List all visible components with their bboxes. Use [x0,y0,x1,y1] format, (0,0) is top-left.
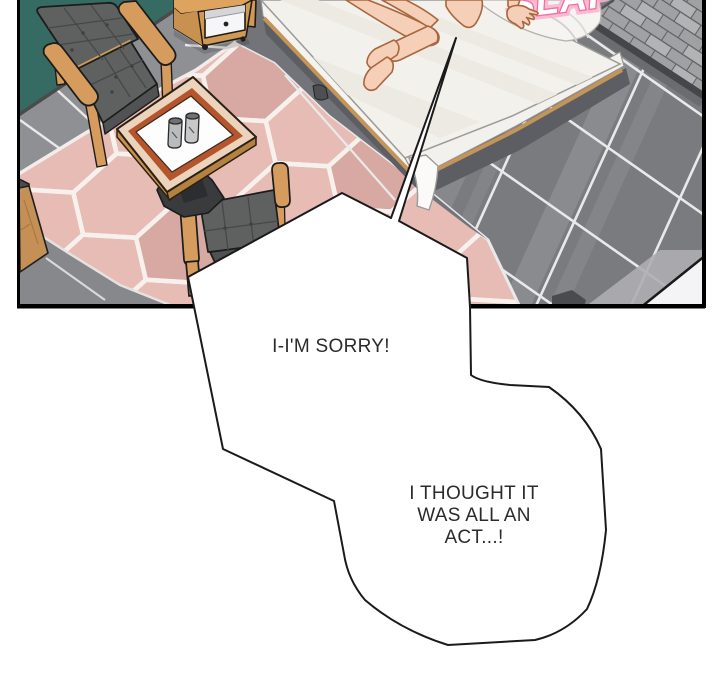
svg-text:WAS ALL AN: WAS ALL AN [417,505,531,526]
svg-text:ACT...!: ACT...! [444,527,503,548]
svg-text:I-I'M SORRY!: I-I'M SORRY! [272,336,390,357]
svg-text:I THOUGHT IT: I THOUGHT IT [409,483,539,504]
